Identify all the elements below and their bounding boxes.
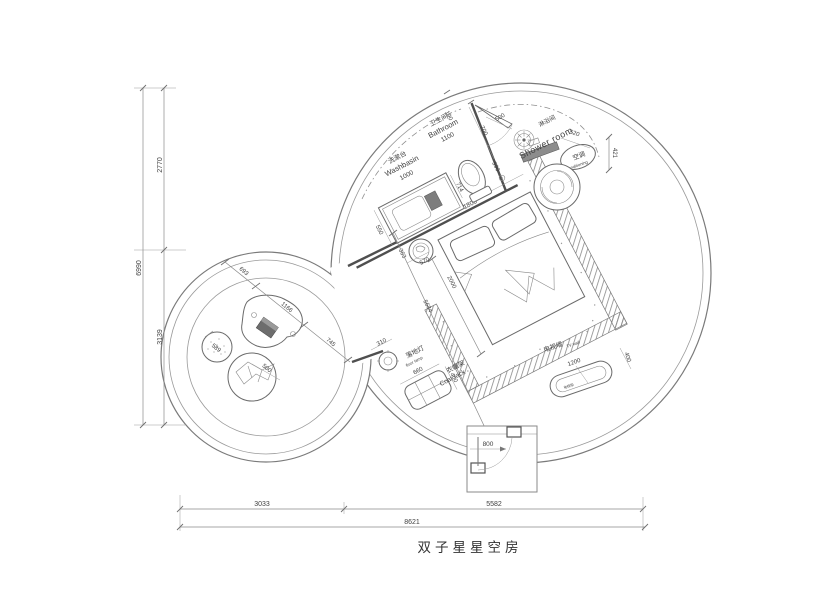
bottom-dimensions: 3033 5582 8621	[177, 495, 648, 531]
floor-plan-drawing: 1800 550 714 洗漱台 Washbasin 1000 卫生间 Bath…	[0, 0, 837, 592]
floor-plan-canvas: 1800 550 714 洗漱台 Washbasin 1000 卫生间 Bath…	[0, 0, 837, 592]
dim-ac-height: 421	[611, 148, 617, 159]
drain-symbol-dot	[501, 177, 503, 179]
dim-bottom-total: 8621	[404, 519, 420, 526]
dim-bottom-right: 5582	[486, 501, 502, 508]
door-post-right	[507, 427, 521, 437]
cushion-circle	[228, 353, 276, 401]
dim-entry-door: 800	[483, 441, 494, 448]
drawing-title: 双子星星空房	[418, 540, 523, 555]
dim-left-top: 2770	[157, 157, 164, 173]
exhaust-fan	[534, 164, 580, 210]
entry-vestibule: 800	[467, 426, 537, 492]
dim-bottom-left: 3033	[254, 501, 270, 508]
dim-left-bottom: 3139	[157, 329, 164, 345]
dim-left-total: 6990	[136, 260, 143, 276]
